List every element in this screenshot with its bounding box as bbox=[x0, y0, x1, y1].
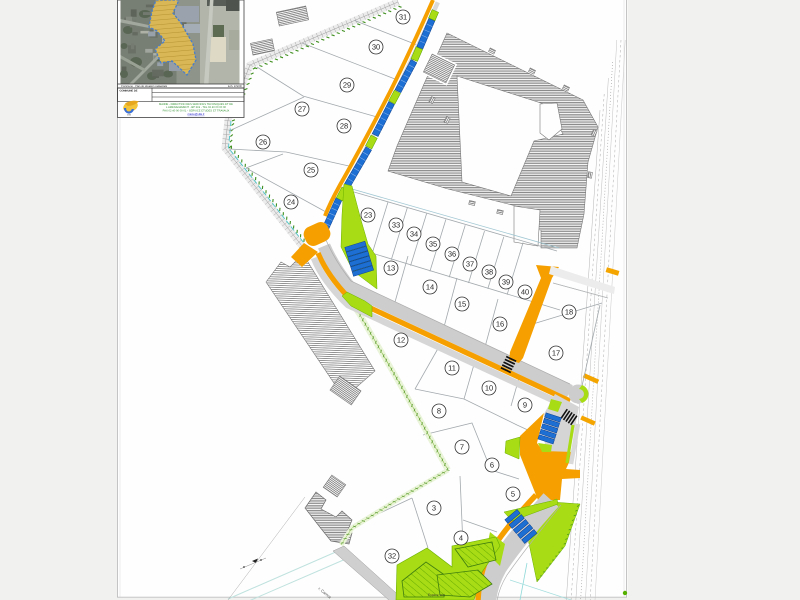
svg-text:25: 25 bbox=[307, 166, 315, 175]
svg-text:32: 32 bbox=[388, 552, 396, 561]
svg-text:Commune - Plan de situation: Commune - Plan de situation cadastrale bbox=[121, 85, 168, 88]
svg-text:Espace vert: Espace vert bbox=[428, 593, 445, 597]
svg-text:39: 39 bbox=[502, 278, 510, 287]
svg-text:5: 5 bbox=[511, 490, 515, 499]
svg-text:4: 4 bbox=[459, 534, 463, 543]
svg-text:34: 34 bbox=[410, 230, 418, 239]
svg-text:14: 14 bbox=[426, 283, 434, 292]
svg-text:38: 38 bbox=[485, 268, 493, 277]
svg-text:35: 35 bbox=[429, 240, 437, 249]
svg-text:28: 28 bbox=[340, 122, 348, 131]
svg-text:18: 18 bbox=[565, 308, 573, 317]
svg-text:9: 9 bbox=[523, 401, 527, 410]
svg-text:ville: ville bbox=[127, 114, 132, 117]
svg-text:29: 29 bbox=[343, 81, 351, 90]
svg-text:7: 7 bbox=[460, 443, 464, 452]
svg-text:6: 6 bbox=[490, 461, 494, 470]
svg-text:COMMUNE DE: COMMUNE DE bbox=[120, 90, 138, 93]
svg-text:12: 12 bbox=[397, 336, 405, 345]
svg-text:17: 17 bbox=[552, 349, 560, 358]
svg-text:16: 16 bbox=[496, 320, 504, 329]
svg-text:11: 11 bbox=[448, 364, 456, 373]
svg-text:24: 24 bbox=[287, 198, 295, 207]
svg-text:31: 31 bbox=[399, 13, 407, 22]
svg-text:26: 26 bbox=[259, 138, 267, 147]
svg-text:33: 33 bbox=[392, 221, 400, 230]
svg-text:Ech. 1/5000: Ech. 1/5000 bbox=[228, 85, 242, 88]
svg-text:23: 23 bbox=[364, 211, 372, 220]
svg-text:27: 27 bbox=[298, 105, 306, 114]
svg-text:mairie@ville.fr: mairie@ville.fr bbox=[187, 113, 204, 116]
svg-text:30: 30 bbox=[372, 43, 380, 52]
svg-text:10: 10 bbox=[485, 384, 493, 393]
svg-text:3: 3 bbox=[432, 504, 436, 513]
svg-text:36: 36 bbox=[448, 250, 456, 259]
svg-text:40: 40 bbox=[521, 288, 529, 297]
svg-text:37: 37 bbox=[466, 260, 474, 269]
svg-text:8: 8 bbox=[437, 407, 441, 416]
svg-text:15: 15 bbox=[458, 300, 466, 309]
svg-text:13: 13 bbox=[387, 264, 395, 273]
